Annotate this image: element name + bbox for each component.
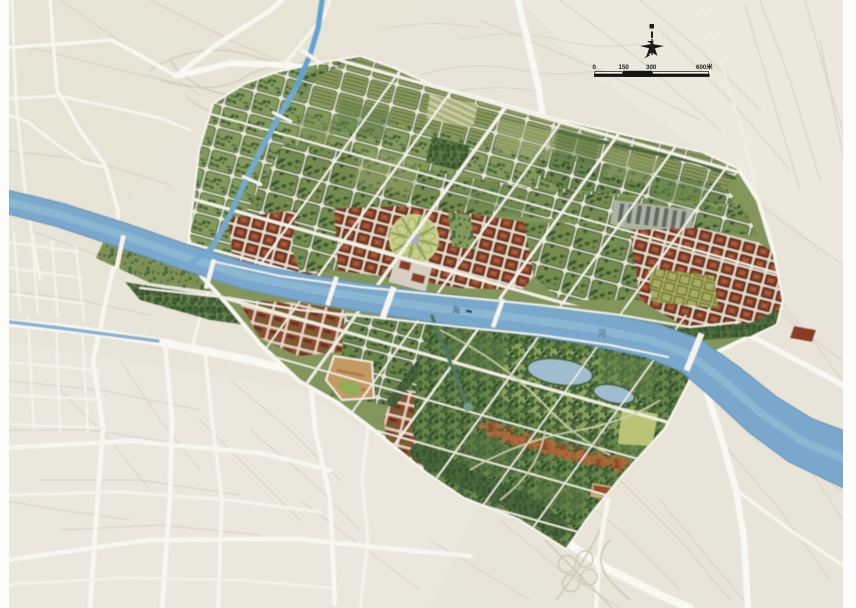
svg-text:150: 150 — [619, 64, 630, 71]
svg-text:600米: 600米 — [696, 63, 713, 71]
svg-text:300: 300 — [646, 64, 657, 71]
svg-text:海: 海 — [452, 305, 460, 315]
svg-text:0: 0 — [593, 64, 597, 71]
svg-text:河: 河 — [598, 328, 606, 338]
